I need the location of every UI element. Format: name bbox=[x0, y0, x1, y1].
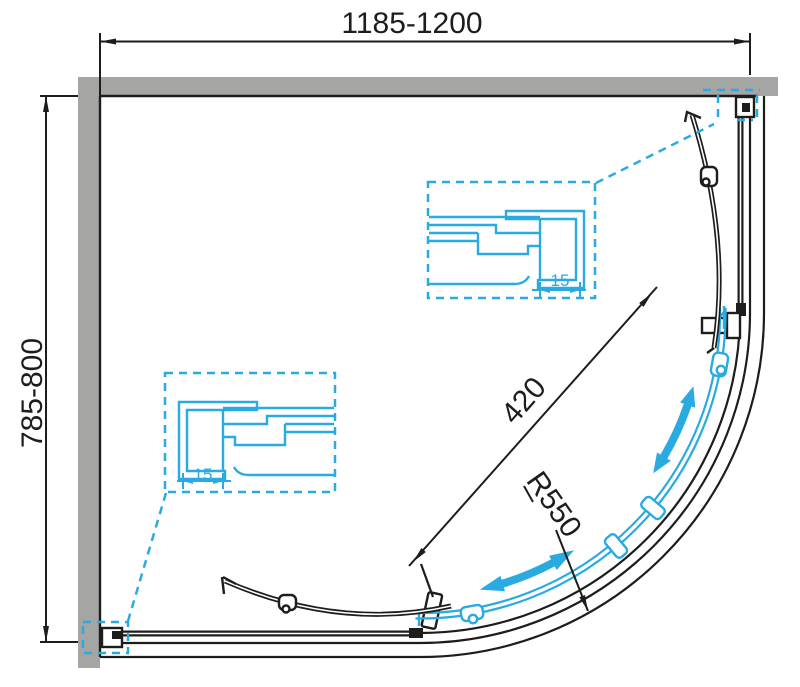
top-rail-arc bbox=[422, 315, 740, 633]
width-dimension-label: 1185-1200 bbox=[341, 7, 482, 40]
door-handle-upper bbox=[710, 352, 729, 377]
door-opening-label: 420 bbox=[495, 371, 553, 430]
profile-adjustment-left-label: 15 bbox=[194, 465, 213, 484]
radius-label: R550 bbox=[520, 466, 588, 544]
left-wall bbox=[78, 77, 100, 668]
detail-leader-left bbox=[128, 493, 166, 621]
door-knob-right bbox=[701, 167, 717, 186]
wall-profile-top-right bbox=[736, 97, 754, 117]
door-handle-lower bbox=[460, 604, 484, 623]
tray-edge-inner bbox=[118, 96, 750, 643]
top-wall bbox=[78, 77, 778, 96]
shower-enclosure-plan: 1185-1200 785-800 420 R550 bbox=[0, 0, 800, 687]
dimension-left-depth: 785-800 bbox=[16, 96, 78, 642]
arrowhead-right-icon bbox=[734, 39, 750, 45]
profile-adjustment-right-label: 15 bbox=[551, 271, 570, 290]
sliding-doors-track bbox=[415, 306, 728, 626]
sliding-door-glass-inner bbox=[416, 308, 720, 613]
wall-profile-bottom-left bbox=[102, 628, 122, 647]
tray-edge-outer bbox=[100, 96, 764, 657]
dimension-radius: R550 bbox=[520, 466, 588, 611]
tray-edges bbox=[100, 96, 764, 657]
door-knob-bottom bbox=[279, 595, 296, 613]
arrowhead-down-icon bbox=[43, 626, 49, 642]
detail-leader-right bbox=[596, 124, 714, 183]
door-open-bottom bbox=[222, 577, 451, 614]
bottom-panel-end-cap bbox=[409, 628, 423, 638]
drawing-canvas: 1185-1200 785-800 420 R550 bbox=[0, 0, 800, 687]
depth-dimension-label: 785-800 bbox=[16, 338, 49, 448]
arrowhead-left-icon bbox=[100, 39, 116, 45]
arrowhead-up-icon bbox=[43, 96, 49, 112]
